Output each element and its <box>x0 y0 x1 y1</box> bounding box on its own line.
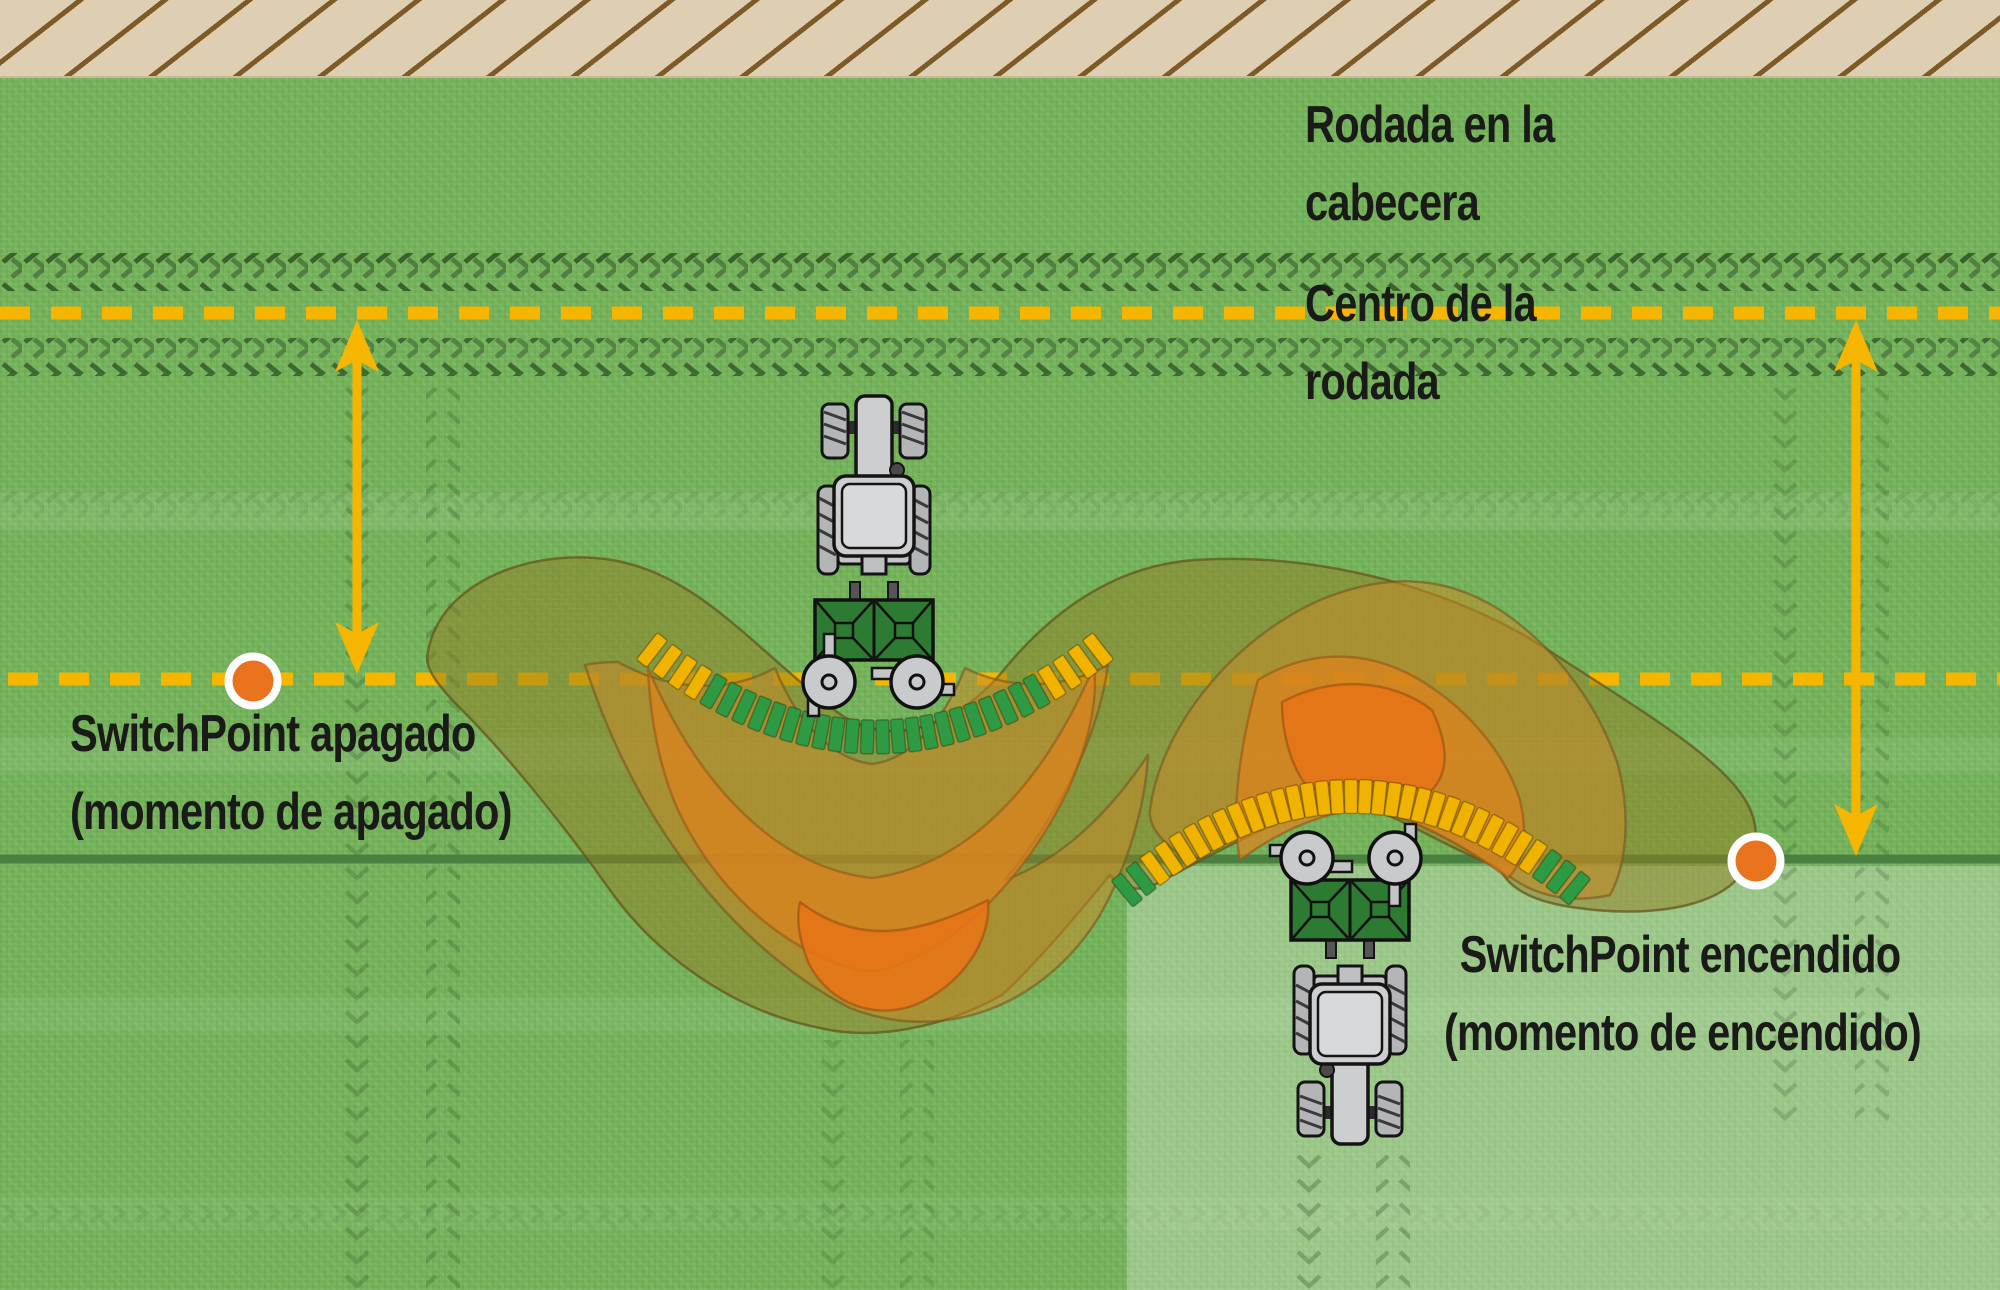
track-center-label-line2: rodada <box>1305 343 1536 421</box>
working-width-bar <box>844 719 860 754</box>
tractor-spreader-up-icon <box>803 396 954 716</box>
switchpoint-off-label-line2: (momento de apagado) <box>70 773 470 851</box>
headland-track-band-upper <box>0 253 2000 291</box>
headland-track-label-line2: cabecera <box>1305 164 1554 242</box>
working-width-bar <box>890 719 906 754</box>
switchpoint-on-label-line1: SwitchPoint encendido <box>1444 916 1916 994</box>
headland-track-label: Rodada en la cabecera <box>1305 86 1554 242</box>
working-width-bar <box>1315 780 1332 815</box>
diagram-stage: Rodada en la cabecera Centro de la rodad… <box>0 0 2000 1290</box>
working-width-bar <box>860 720 874 754</box>
spreading-scene <box>0 0 2000 1290</box>
switchpoint-on-marker <box>1728 833 1785 890</box>
track-center-label: Centro de la rodada <box>1305 265 1536 421</box>
switchpoint-on-label: SwitchPoint encendido (momento de encend… <box>1444 916 1916 1072</box>
switchpoint-off-label-line1: SwitchPoint apagado <box>70 695 470 773</box>
working-width-bar <box>1344 779 1357 813</box>
working-width-bar <box>876 720 890 754</box>
headland-track-band-lower <box>0 338 2000 376</box>
headland-track-label-line1: Rodada en la <box>1305 86 1554 164</box>
working-width-bar <box>1330 780 1345 815</box>
faint-track-band <box>0 492 2000 522</box>
track-center-label-line1: Centro de la <box>1305 265 1536 343</box>
switchpoint-on-label-line2: (momento de encendido) <box>1444 994 1916 1072</box>
switchpoint-off-label: SwitchPoint apagado (momento de apagado) <box>70 695 470 851</box>
working-width-bar <box>1358 780 1373 815</box>
